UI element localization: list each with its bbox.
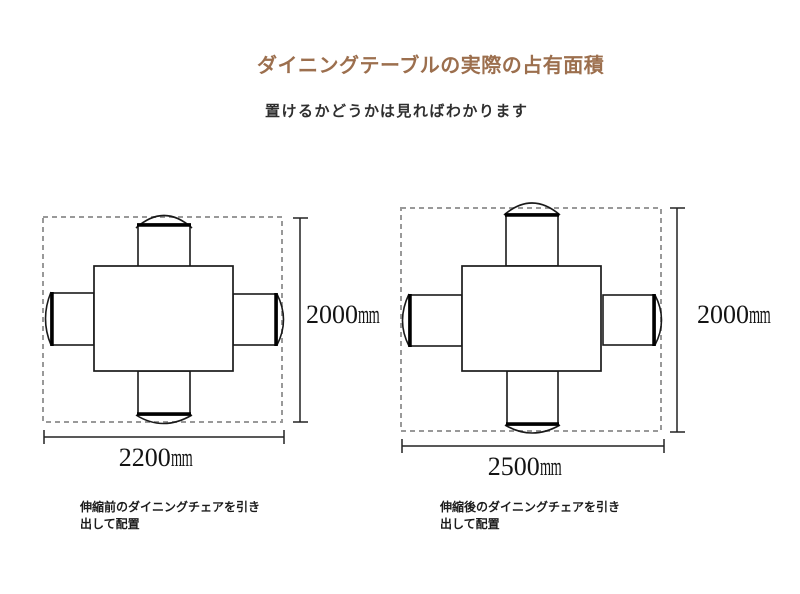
dimension-unit: mm bbox=[540, 453, 561, 481]
chair-seat bbox=[51, 293, 94, 345]
height-dimension-line bbox=[670, 208, 685, 432]
chair-back-arc bbox=[277, 294, 284, 345]
chair-seat bbox=[506, 214, 558, 266]
table-top bbox=[94, 266, 233, 371]
chair-back-arc bbox=[46, 292, 52, 345]
caption-line: 伸縮後のダイニングチェアを引き bbox=[440, 499, 620, 516]
caption-line: 出して配置 bbox=[440, 516, 620, 533]
table-top bbox=[462, 266, 601, 371]
chair-seat bbox=[409, 295, 462, 346]
dimension-value: 2000 bbox=[697, 300, 749, 329]
width-dimension-line bbox=[402, 439, 664, 453]
chair-seat bbox=[138, 371, 190, 415]
dimension-value: 2200 bbox=[119, 443, 171, 472]
width-dimension-label: 2500mm bbox=[478, 453, 588, 481]
width-dimension-line bbox=[44, 430, 284, 444]
caption-line: 出して配置 bbox=[80, 516, 260, 533]
chair-seat bbox=[233, 294, 277, 345]
width-dimension-label: 2200mm bbox=[109, 444, 219, 472]
dimension-value: 2000 bbox=[306, 300, 358, 329]
height-dimension-label: 2000mm bbox=[697, 301, 787, 329]
height-dimension-label: 2000mm bbox=[306, 301, 396, 329]
diagram-before bbox=[43, 216, 308, 445]
chair-left bbox=[46, 292, 95, 346]
page: ダイニングテーブルの実際の占有面積 置けるかどうかは見ればわかります bbox=[0, 0, 800, 594]
chair-right bbox=[603, 294, 662, 346]
dimension-value: 2500 bbox=[488, 452, 540, 481]
chair-bottom bbox=[505, 371, 560, 433]
dimension-unit: mm bbox=[171, 444, 192, 472]
chair-back-arc bbox=[403, 294, 410, 346]
chair-top bbox=[504, 203, 560, 266]
chair-left bbox=[403, 294, 463, 347]
dimension-unit: mm bbox=[358, 301, 379, 329]
dimension-unit: mm bbox=[749, 301, 770, 329]
chair-seat bbox=[603, 295, 655, 345]
chair-right bbox=[233, 293, 284, 346]
chair-seat bbox=[138, 224, 190, 267]
chair-bottom bbox=[136, 371, 192, 424]
chair-top bbox=[136, 216, 192, 268]
caption-before: 伸縮前のダイニングチェアを引き 出して配置 bbox=[80, 499, 260, 532]
caption-line: 伸縮前のダイニングチェアを引き bbox=[80, 499, 260, 516]
chair-seat bbox=[507, 371, 558, 425]
caption-after: 伸縮後のダイニングチェアを引き 出して配置 bbox=[440, 499, 620, 532]
diagram-after bbox=[401, 203, 685, 453]
